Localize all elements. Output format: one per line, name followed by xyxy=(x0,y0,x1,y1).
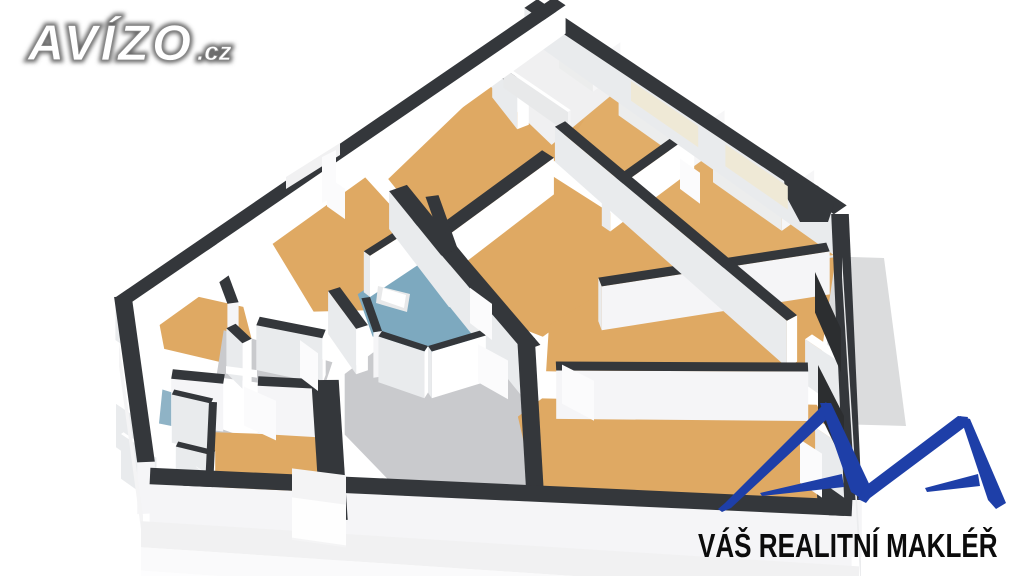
svg-text:AVÍZO: AVÍZO xyxy=(26,15,195,71)
svg-text:VÁŠ REALITNÍ MAKLÉŘ: VÁŠ REALITNÍ MAKLÉŘ xyxy=(698,527,998,565)
svg-text:.cz: .cz xyxy=(197,36,232,66)
